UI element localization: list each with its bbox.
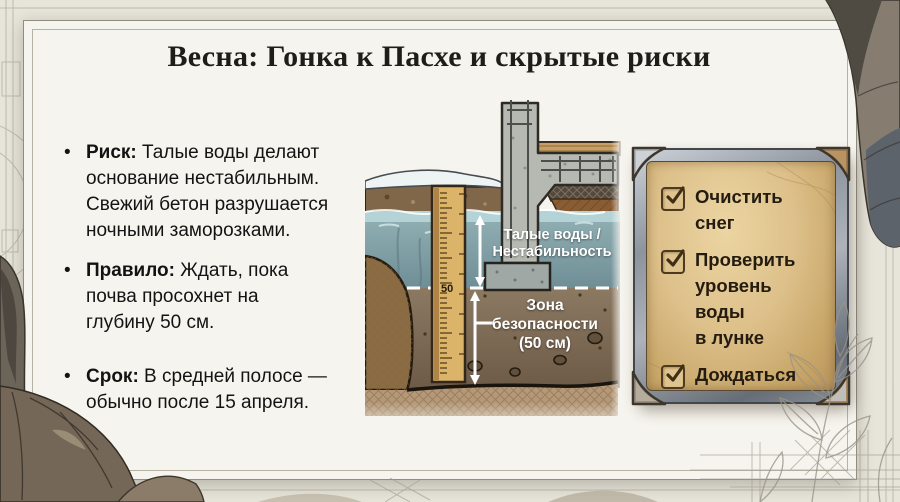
bullet-term: Срок: В средней полосе — обычно после 15… bbox=[62, 364, 330, 416]
footing-block bbox=[485, 263, 550, 290]
gravel-band bbox=[543, 184, 618, 213]
check-item-water-level: Проверить уровень воды в лунке bbox=[659, 247, 825, 351]
svg-text:Талые воды /: Талые воды / bbox=[503, 227, 600, 243]
check-item-clear-snow: Очистить снег bbox=[659, 184, 825, 236]
bullet-risk-label: Риск: bbox=[86, 142, 137, 163]
svg-text:Нестабильность: Нестабильность bbox=[492, 244, 611, 260]
checkbox-checked-icon[interactable] bbox=[661, 250, 685, 274]
svg-text:Зона: Зона bbox=[526, 297, 564, 314]
plaque-corner-cap bbox=[631, 370, 667, 406]
svg-text:безопасности: безопасности bbox=[492, 316, 598, 333]
svg-text:(50 см): (50 см) bbox=[519, 335, 571, 352]
bullet-list: Риск: Талые воды делают основание нестаб… bbox=[62, 140, 330, 430]
bullet-rule: Правило: Ждать, пока почва просохнет на … bbox=[62, 258, 330, 336]
measuring-ruler: 50 bbox=[432, 186, 465, 382]
check-list: Очистить снег Проверить уровень воды в л… bbox=[647, 162, 835, 391]
check-item-label: Очистить снег bbox=[695, 184, 825, 236]
plaque-corner-cap bbox=[631, 146, 667, 182]
ruler-50-mark: 50 bbox=[441, 283, 453, 295]
plaque-corner-cap bbox=[815, 146, 851, 182]
slide-canvas: { "title": "Весна: Гонка к Пасхе и скрыт… bbox=[0, 0, 900, 502]
checklist-plaque: Очистить снег Проверить уровень воды в л… bbox=[633, 148, 849, 404]
water-zone-label: Талые воды / Нестабильность bbox=[492, 227, 611, 260]
bullet-term-label: Срок: bbox=[86, 366, 139, 387]
checkbox-checked-icon[interactable] bbox=[661, 187, 685, 211]
page-title: Весна: Гонка к Пасхе и скрытые риски bbox=[23, 40, 855, 74]
plaque-plate: Очистить снег Проверить уровень воды в л… bbox=[646, 161, 836, 391]
bullet-risk: Риск: Талые воды делают основание нестаб… bbox=[62, 140, 330, 244]
bullet-rule-label: Правило: bbox=[86, 260, 175, 281]
soil-cross-section-diagram: 50 Талые воды / Нестабильность Зона безо… bbox=[365, 98, 623, 434]
plaque-corner-cap bbox=[815, 370, 851, 406]
check-item-roads-open: Дождаться открытия дорог администрацией bbox=[659, 362, 825, 391]
check-item-label: Проверить уровень воды в лунке bbox=[695, 247, 825, 351]
